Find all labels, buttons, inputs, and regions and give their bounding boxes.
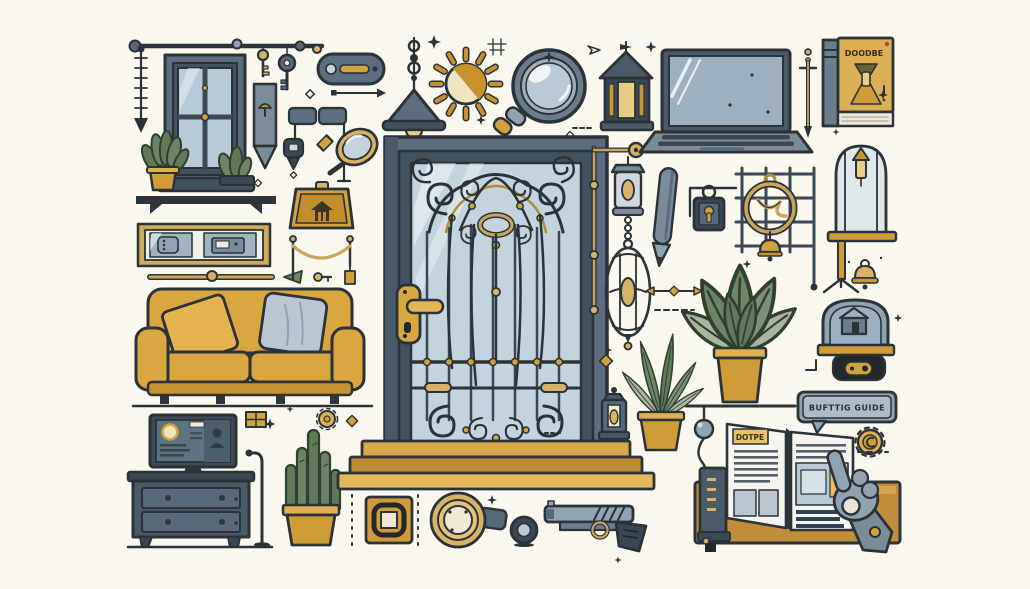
padlock — [690, 186, 736, 230]
viewer-lens — [511, 517, 537, 547]
wall-shelf — [136, 196, 276, 214]
book-title-text: DOODBE — [845, 49, 883, 58]
small-coin — [317, 409, 338, 430]
curtain-rod — [130, 40, 323, 54]
speech-bubble: BUFTTIG GUIDE — [798, 392, 896, 433]
house-plaque — [290, 182, 353, 228]
illustration-canvas: DOODBE — [0, 0, 1030, 589]
large-potted-plant — [677, 266, 801, 402]
door-steps — [338, 441, 654, 489]
arrow-marker — [331, 89, 386, 98]
pennant — [254, 84, 276, 168]
wall-plate — [366, 497, 412, 543]
pill-button — [318, 54, 384, 84]
picture-frame — [138, 224, 270, 266]
illustration: DOODBE — [0, 0, 1030, 589]
guide-label-text: DOTPE — [736, 433, 764, 442]
tv — [150, 415, 236, 476]
sword-pin — [800, 49, 816, 138]
cactus — [283, 430, 340, 545]
measuring-arrow — [134, 46, 148, 134]
hand-mirror — [330, 122, 384, 173]
pendant-lamp — [383, 38, 445, 138]
hardcover-book: DOODBE — [823, 38, 893, 126]
hanging-bell — [758, 232, 782, 262]
grid-icon — [246, 412, 266, 427]
crosshair-mark — [488, 39, 506, 55]
gold-rod — [150, 271, 272, 281]
pencil — [651, 167, 678, 266]
standing-book-spine — [698, 468, 730, 544]
speech-bubble-text: BUFTTIG GUIDE — [809, 404, 885, 413]
sofa — [133, 289, 372, 406]
dome-camera — [806, 300, 894, 380]
bell-ornament — [848, 257, 882, 290]
gold-arrow — [646, 286, 702, 296]
small-potted-plant — [620, 334, 706, 450]
roof-lantern — [600, 42, 653, 130]
pistol — [545, 501, 646, 551]
laptop — [640, 50, 812, 152]
door-knocker — [431, 493, 507, 547]
paper-dart — [588, 46, 600, 54]
hanging-birdcage — [606, 217, 650, 350]
mini-keys — [314, 273, 331, 281]
sun — [432, 50, 500, 118]
magnifying-glass — [492, 50, 585, 137]
dresser — [128, 472, 272, 547]
